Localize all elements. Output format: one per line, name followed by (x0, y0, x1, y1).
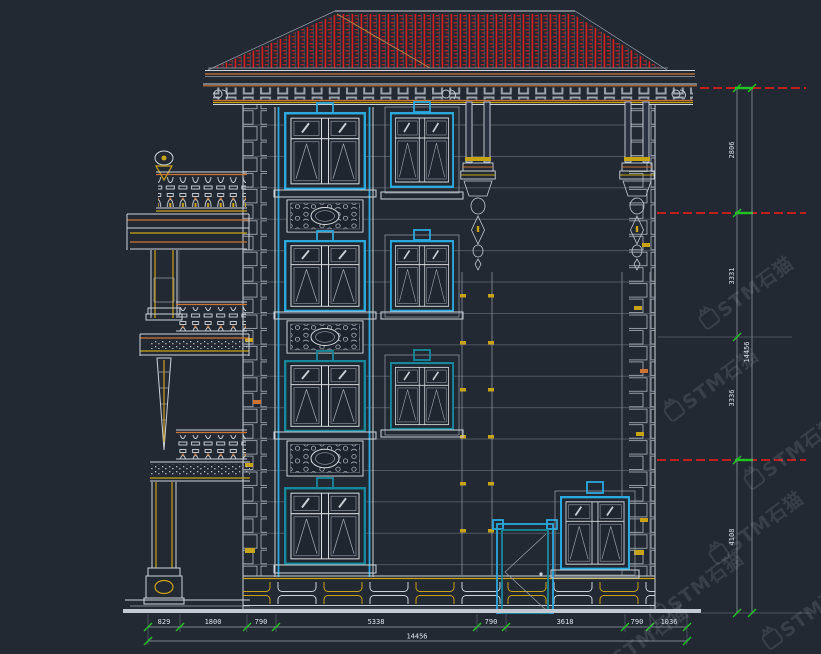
dimension-label: 3331 (728, 268, 736, 285)
dimension-label: 3336 (728, 390, 736, 407)
door-handle (539, 572, 542, 575)
cornice (203, 68, 697, 105)
ornate-panel-3 (287, 441, 363, 476)
quoin-strip-right (629, 105, 655, 576)
frieze-lower (150, 462, 250, 481)
middle-window-3 (391, 363, 453, 429)
dentil-row (213, 88, 693, 100)
dimension-label: 790 (631, 618, 644, 626)
ground-window-sashes (561, 497, 629, 569)
ornate-panel-2 (287, 321, 363, 353)
bay-window-4 (285, 488, 365, 564)
dimension-label: 3618 (557, 618, 574, 626)
plinth-panels (243, 582, 655, 604)
dimension-label: 829 (158, 618, 171, 626)
middle-window-column (381, 102, 463, 437)
bay-window-2 (285, 241, 365, 311)
dimension-label: 1800 (205, 618, 222, 626)
dimension-label: 2806 (728, 142, 736, 159)
cad-canvas[interactable]: 2806 3331 3336 4108 14456 829 1800 790 5… (0, 0, 821, 654)
dimension-label: 790 (255, 618, 268, 626)
balustrade-upper (156, 172, 247, 211)
bay-window-1 (285, 113, 365, 189)
dimension-total-label: 14456 (406, 633, 427, 641)
bay-window-stack (274, 103, 376, 577)
ornate-panel-1 (287, 200, 363, 232)
middle-window-2 (391, 241, 453, 311)
bay-window-3 (285, 361, 365, 431)
dimension-label: 790 (485, 618, 498, 626)
middle-window-1 (391, 113, 453, 187)
dimension-label: 5338 (368, 618, 385, 626)
ground-window (551, 482, 639, 578)
